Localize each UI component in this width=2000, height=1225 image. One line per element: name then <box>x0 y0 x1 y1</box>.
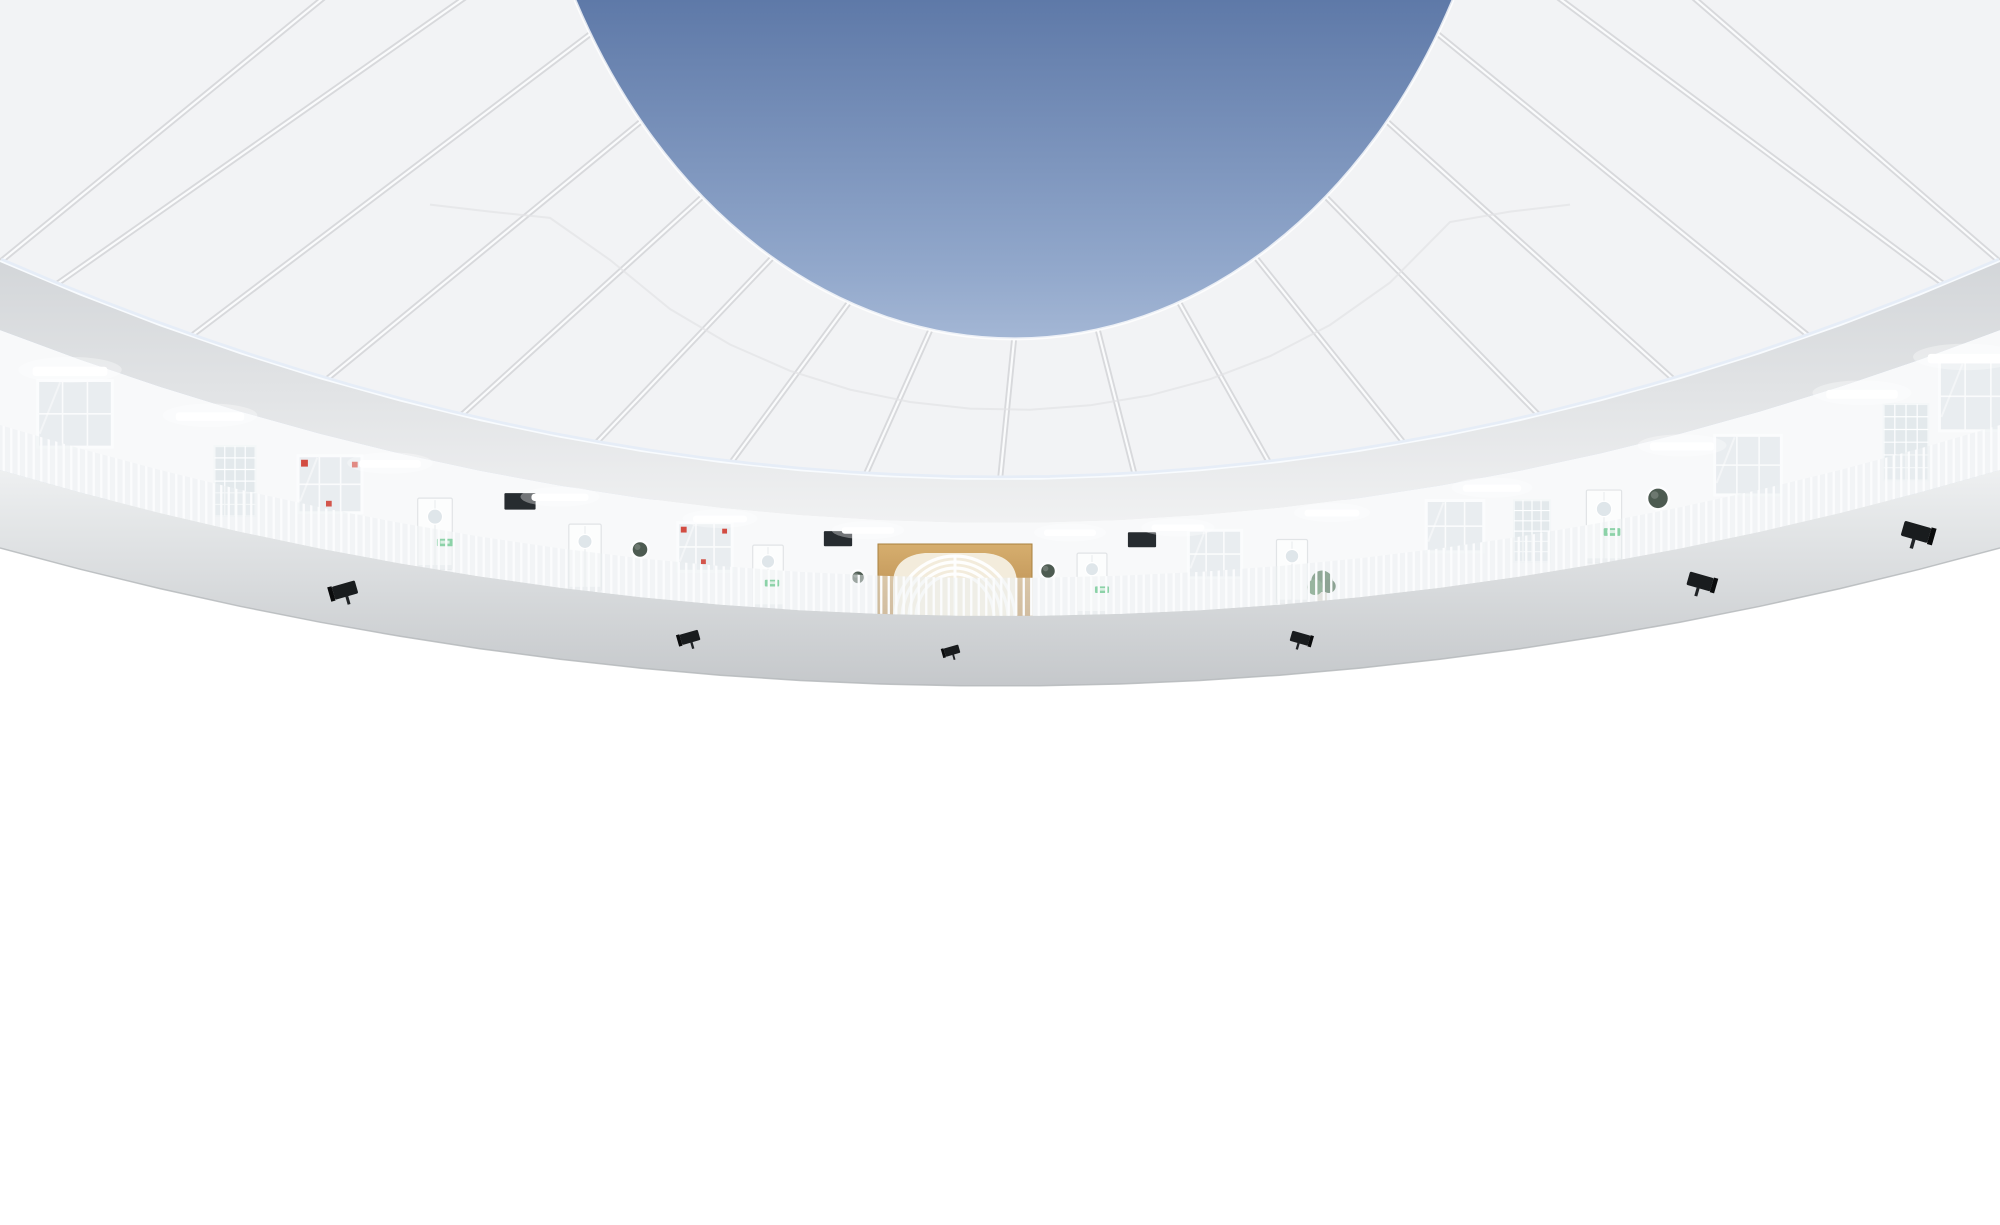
porthole <box>1647 487 1669 509</box>
window <box>38 381 113 448</box>
board <box>1128 532 1156 547</box>
ceiling-light <box>1812 380 1911 405</box>
ceiling-light <box>832 521 905 539</box>
ceiling-light <box>18 357 121 383</box>
ceiling-light <box>1638 434 1727 456</box>
ceiling-light <box>1294 503 1370 522</box>
ceiling-light <box>1452 478 1533 498</box>
porthole <box>631 541 648 558</box>
ceiling-light <box>1141 518 1214 536</box>
window <box>1939 362 2000 431</box>
ceiling-light <box>1034 523 1106 541</box>
kindergarten-atrium-photo <box>0 0 2000 1225</box>
ceiling-light <box>163 403 258 427</box>
porthole <box>1040 563 1056 579</box>
ceiling-light <box>683 509 758 528</box>
atrium-scene <box>0 0 2000 1225</box>
ceiling-light <box>520 487 599 507</box>
ceiling-light <box>347 452 433 473</box>
